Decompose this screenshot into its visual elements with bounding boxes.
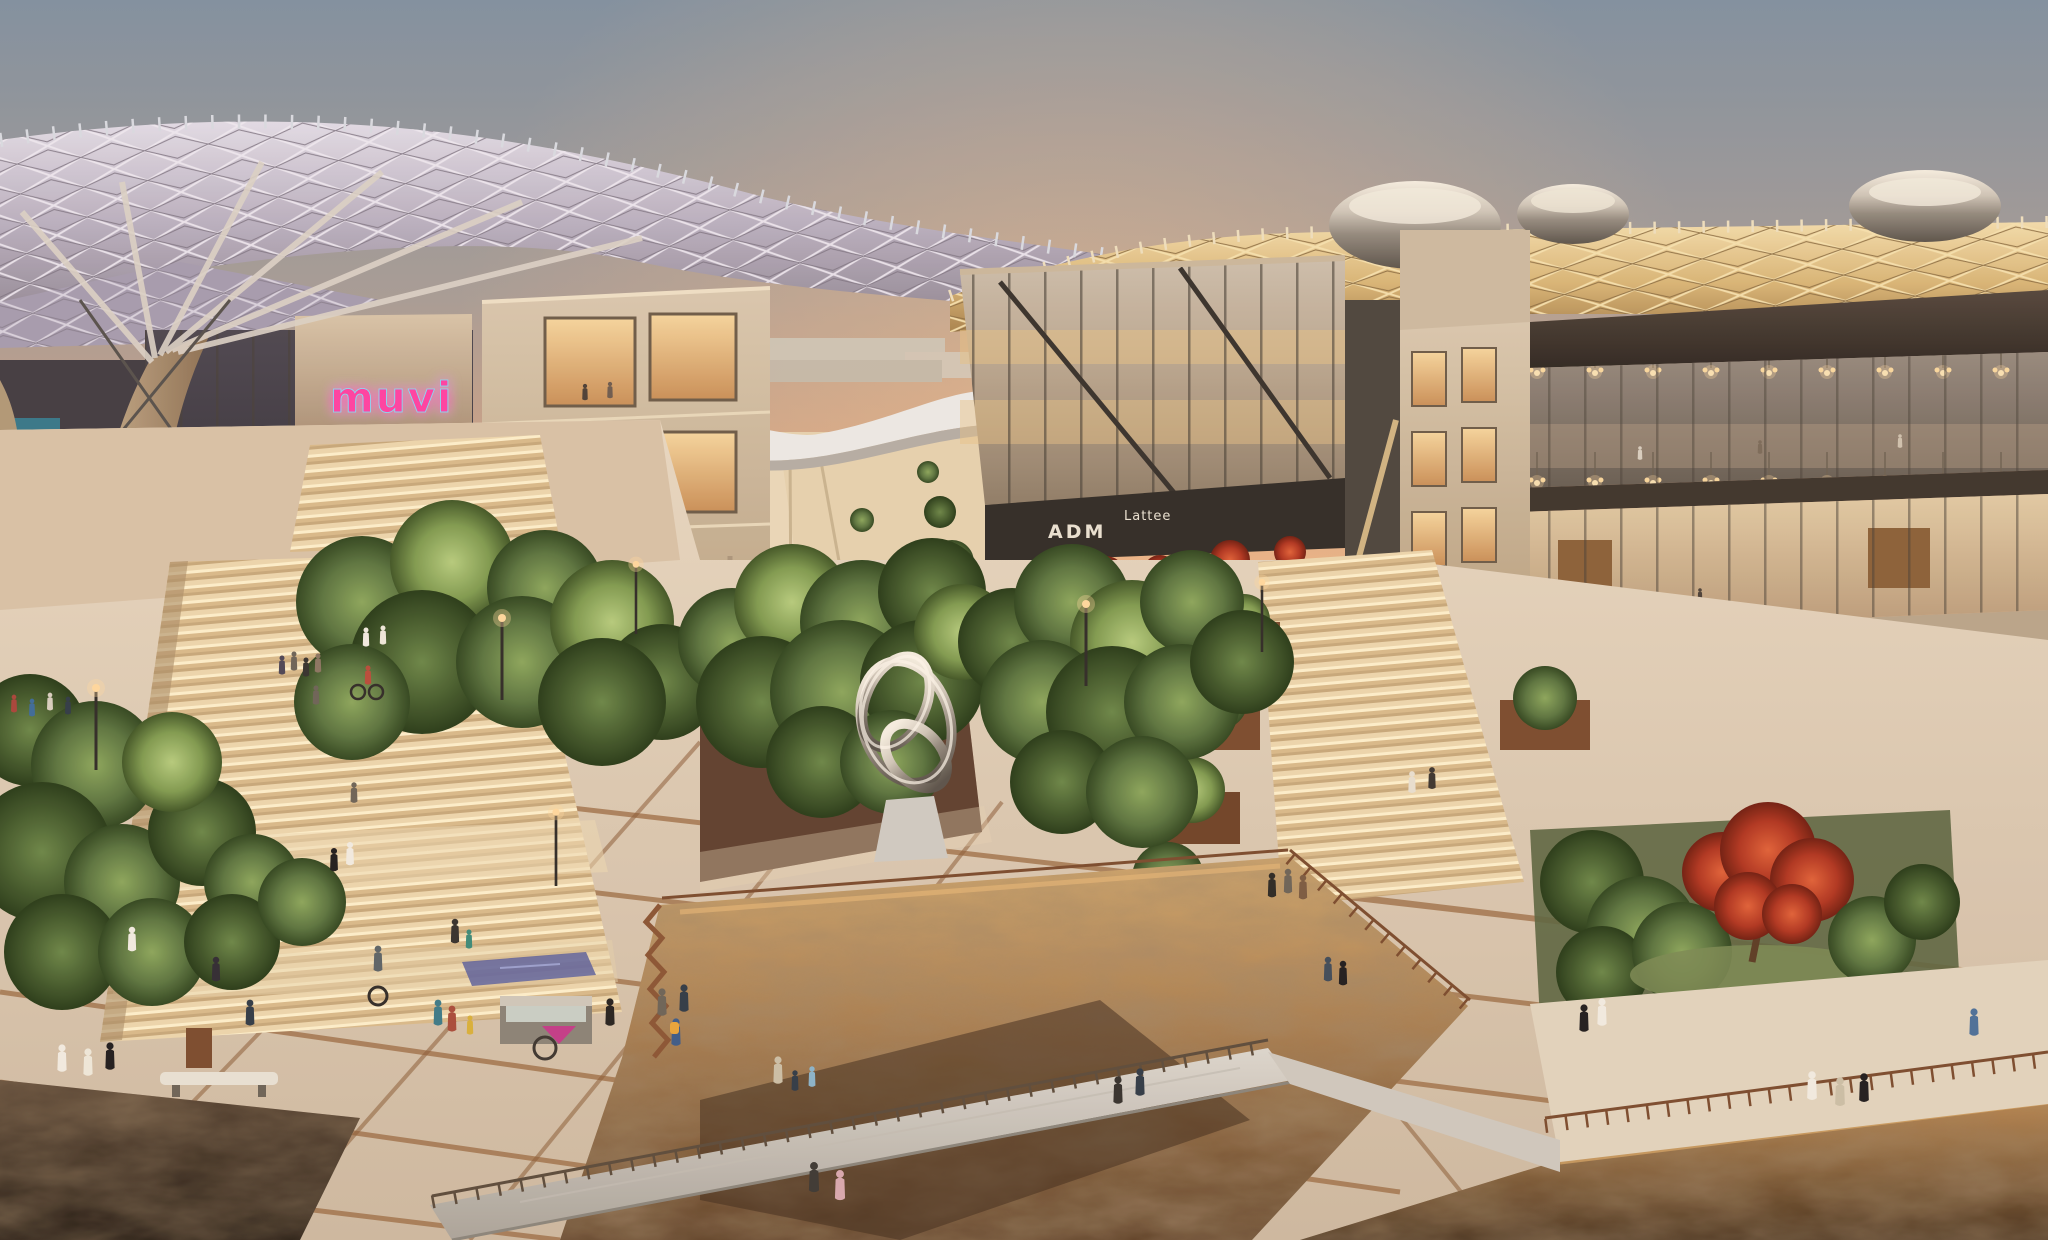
render-canvas: muvi SOCIA society SOCIA Lattee ADM	[0, 0, 2048, 1240]
dusk-color-wash	[0, 0, 2048, 1240]
architectural-render: muvi SOCIA society SOCIA Lattee ADM	[0, 0, 2048, 1240]
